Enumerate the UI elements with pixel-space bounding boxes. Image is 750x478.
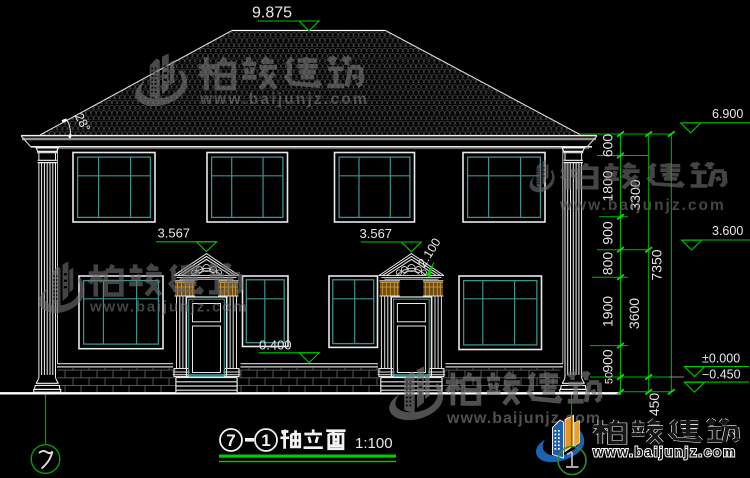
- svg-text:7: 7: [226, 431, 235, 450]
- svg-text:50: 50: [604, 372, 616, 384]
- svg-text:www.baijunjz.com: www.baijunjz.com: [592, 445, 737, 460]
- svg-text:3600: 3600: [626, 298, 642, 329]
- svg-text:0.400: 0.400: [259, 337, 292, 352]
- svg-text:800: 800: [600, 252, 616, 276]
- svg-text:900: 900: [600, 221, 616, 245]
- svg-text:www.baijunjz.com: www.baijunjz.com: [199, 91, 369, 108]
- svg-text:3.567: 3.567: [158, 226, 191, 241]
- svg-text:1900: 1900: [600, 296, 616, 327]
- svg-text:7350: 7350: [649, 249, 665, 280]
- svg-text:450: 450: [646, 393, 662, 417]
- svg-text:−0.450: −0.450: [702, 368, 741, 382]
- svg-text:3.567: 3.567: [360, 226, 393, 241]
- svg-text:600: 600: [600, 134, 616, 158]
- svg-text:www.baijunjz.com: www.baijunjz.com: [559, 197, 726, 214]
- svg-text:6.900: 6.900: [712, 107, 743, 121]
- svg-text:1: 1: [261, 431, 270, 450]
- svg-text:900: 900: [600, 349, 616, 373]
- svg-text:9.875: 9.875: [252, 5, 292, 22]
- svg-text:1:100: 1:100: [355, 435, 393, 452]
- svg-text:www.baijunjz.com: www.baijunjz.com: [89, 299, 248, 316]
- svg-text:±0.000: ±0.000: [702, 352, 740, 366]
- svg-text:3.600: 3.600: [712, 224, 743, 238]
